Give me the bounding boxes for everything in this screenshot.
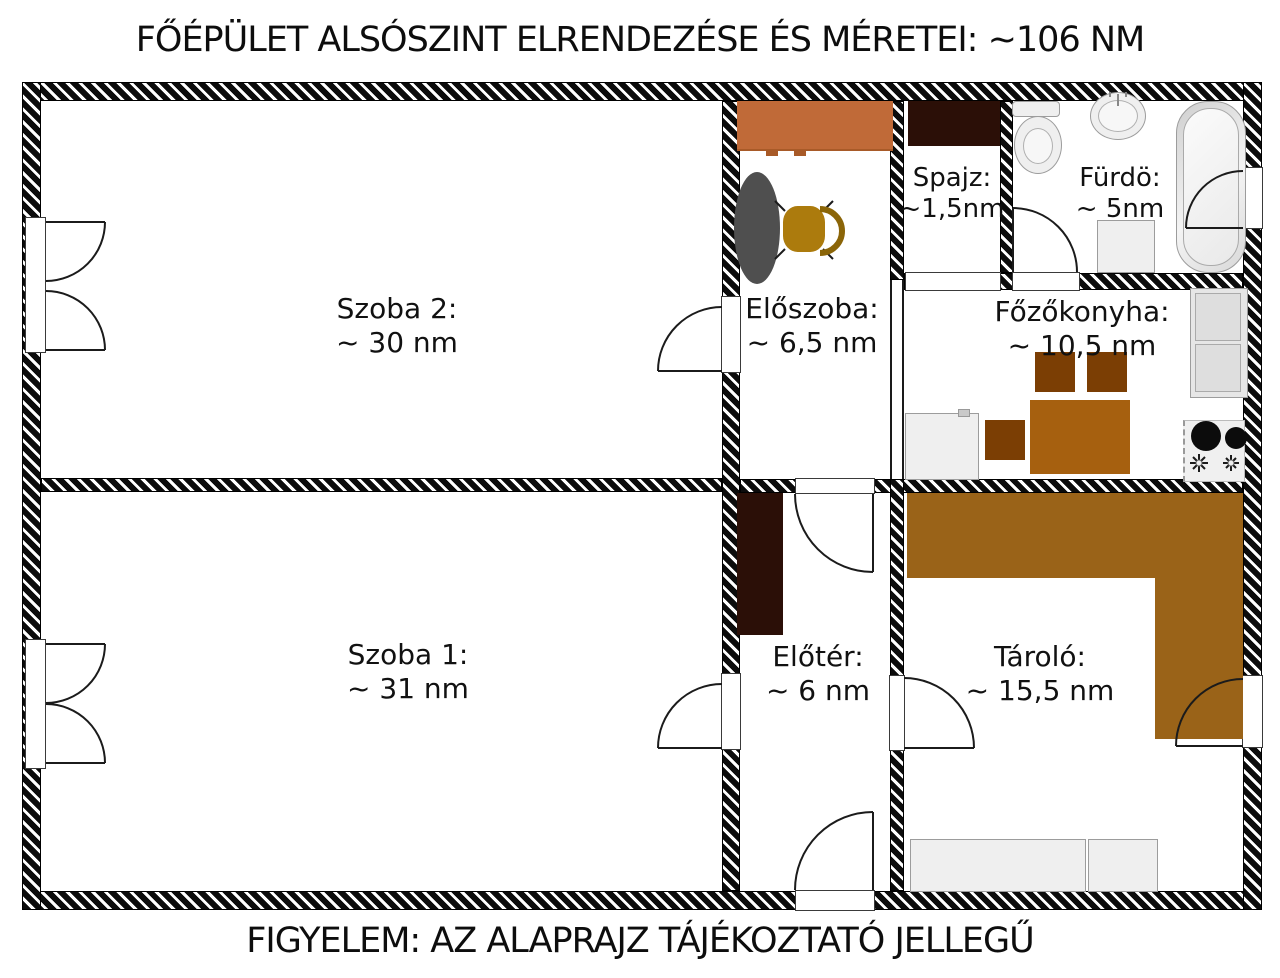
chair-leg bbox=[823, 201, 833, 211]
room-area: ~ 5nm bbox=[1076, 194, 1164, 225]
room-area: ~ 31 nm bbox=[347, 672, 469, 706]
door-arc bbox=[46, 291, 105, 350]
room-area: ~1,5nm bbox=[900, 194, 1005, 225]
room-name: Főzőkonyha: bbox=[994, 295, 1169, 329]
wall-left bbox=[22, 82, 41, 910]
wardrobe-handle bbox=[766, 149, 778, 156]
door-gap-szoba2 bbox=[721, 296, 741, 373]
hall-cabinet bbox=[737, 493, 783, 635]
room-area: ~ 30 nm bbox=[336, 326, 458, 360]
door-arc bbox=[904, 678, 974, 748]
room-label-eloter: Előtér: ~ 6 nm bbox=[766, 640, 870, 707]
door-gap-eloszoba-eloter bbox=[795, 478, 875, 494]
room-area: ~ 6 nm bbox=[766, 674, 870, 708]
pantry-shelf bbox=[908, 101, 1000, 146]
room-name: Előszoba: bbox=[745, 292, 878, 326]
storage-counter-right bbox=[1155, 493, 1243, 739]
kitchen-chair bbox=[985, 420, 1025, 460]
door-gap-szoba1 bbox=[721, 673, 741, 750]
room-name: Spajz: bbox=[900, 163, 1005, 194]
wardrobe bbox=[737, 101, 893, 151]
door-gap-furdo bbox=[1012, 272, 1080, 291]
kitchen-table bbox=[1030, 400, 1130, 474]
door-tarolo bbox=[904, 678, 974, 748]
door-arc bbox=[658, 684, 722, 748]
oval-table bbox=[734, 172, 780, 284]
stove bbox=[1183, 420, 1245, 482]
room-name: Szoba 1: bbox=[347, 638, 469, 672]
storage-appliance bbox=[910, 839, 1086, 892]
door-szoba1 bbox=[658, 684, 722, 748]
door-gap-tarolo bbox=[889, 675, 905, 751]
toilet-tank bbox=[1012, 101, 1060, 117]
wall-eloter-right-upper bbox=[890, 479, 904, 676]
door-eloszoba-eloter bbox=[795, 494, 873, 572]
room-label-eloszoba: Előszoba: ~ 6,5 nm bbox=[745, 292, 878, 359]
door-frame-szoba2-entry bbox=[25, 217, 46, 353]
door-arc bbox=[658, 307, 722, 371]
chair bbox=[783, 206, 825, 252]
bathtub-inner bbox=[1183, 108, 1239, 266]
door-arc bbox=[46, 644, 105, 703]
room-name: Szoba 2: bbox=[336, 292, 458, 326]
refrigerator-door bbox=[1195, 293, 1241, 341]
room-label-spajz: Spajz: ~1,5nm bbox=[900, 163, 1005, 225]
faucet bbox=[958, 409, 970, 417]
door-gap-tarolo-exterior bbox=[1242, 675, 1263, 748]
refrigerator-door bbox=[1195, 344, 1241, 392]
room-area: ~ 10,5 nm bbox=[994, 329, 1169, 363]
wall-eloter-right-lower bbox=[890, 750, 904, 891]
door-furdo bbox=[1013, 208, 1077, 272]
room-area: ~ 15,5 nm bbox=[966, 674, 1115, 708]
chair-leg bbox=[823, 249, 833, 259]
door-frame-szoba1-entry bbox=[25, 639, 46, 769]
room-name: Előtér: bbox=[766, 640, 870, 674]
wall-mid-horizontal-left bbox=[41, 478, 722, 492]
room-label-furdo: Fürdö: ~ 5nm bbox=[1076, 163, 1164, 225]
room-label-szoba1: Szoba 1: ~ 31 nm bbox=[347, 638, 469, 705]
double-door-szoba2 bbox=[46, 222, 105, 350]
door-szoba2 bbox=[658, 307, 722, 371]
door-gap-entrance bbox=[795, 890, 875, 911]
room-name: Tároló: bbox=[966, 640, 1115, 674]
kitchen-counter-sink bbox=[905, 413, 979, 480]
wall-bottom bbox=[22, 891, 1262, 910]
toilet-bowl-inner bbox=[1023, 128, 1053, 164]
wall-eloszoba-kitchen-partition bbox=[890, 280, 904, 479]
page-title: FŐÉPÜLET ALSÓSZINT ELRENDEZÉSE ÉS MÉRETE… bbox=[0, 20, 1280, 60]
wall-top bbox=[22, 82, 1262, 101]
door-entrance bbox=[795, 812, 873, 890]
wardrobe-handle bbox=[794, 149, 806, 156]
room-label-szoba2: Szoba 2: ~ 30 nm bbox=[336, 292, 458, 359]
storage-counter-top bbox=[907, 493, 1155, 578]
floorplan-page: FŐÉPÜLET ALSÓSZINT ELRENDEZÉSE ÉS MÉRETE… bbox=[0, 0, 1280, 978]
door-arc bbox=[46, 222, 105, 281]
room-label-fozokonyha: Főzőkonyha: ~ 10,5 nm bbox=[994, 295, 1169, 362]
washing-machine bbox=[1097, 220, 1155, 273]
door-arc bbox=[795, 494, 873, 572]
room-label-tarolo: Tároló: ~ 15,5 nm bbox=[966, 640, 1115, 707]
door-arc bbox=[795, 812, 873, 890]
double-door-szoba1 bbox=[46, 644, 105, 763]
room-name: Fürdö: bbox=[1076, 163, 1164, 194]
room-area: ~ 6,5 nm bbox=[745, 326, 878, 360]
storage-appliance bbox=[1088, 839, 1158, 892]
disclaimer: FIGYELEM: AZ ALAPRAJZ TÁJÉKOZTATÓ JELLEG… bbox=[0, 921, 1280, 961]
opening-spajz bbox=[905, 272, 1001, 291]
washbasin-inner bbox=[1098, 100, 1138, 132]
door-arc bbox=[1013, 208, 1077, 272]
door-arc bbox=[46, 704, 105, 763]
